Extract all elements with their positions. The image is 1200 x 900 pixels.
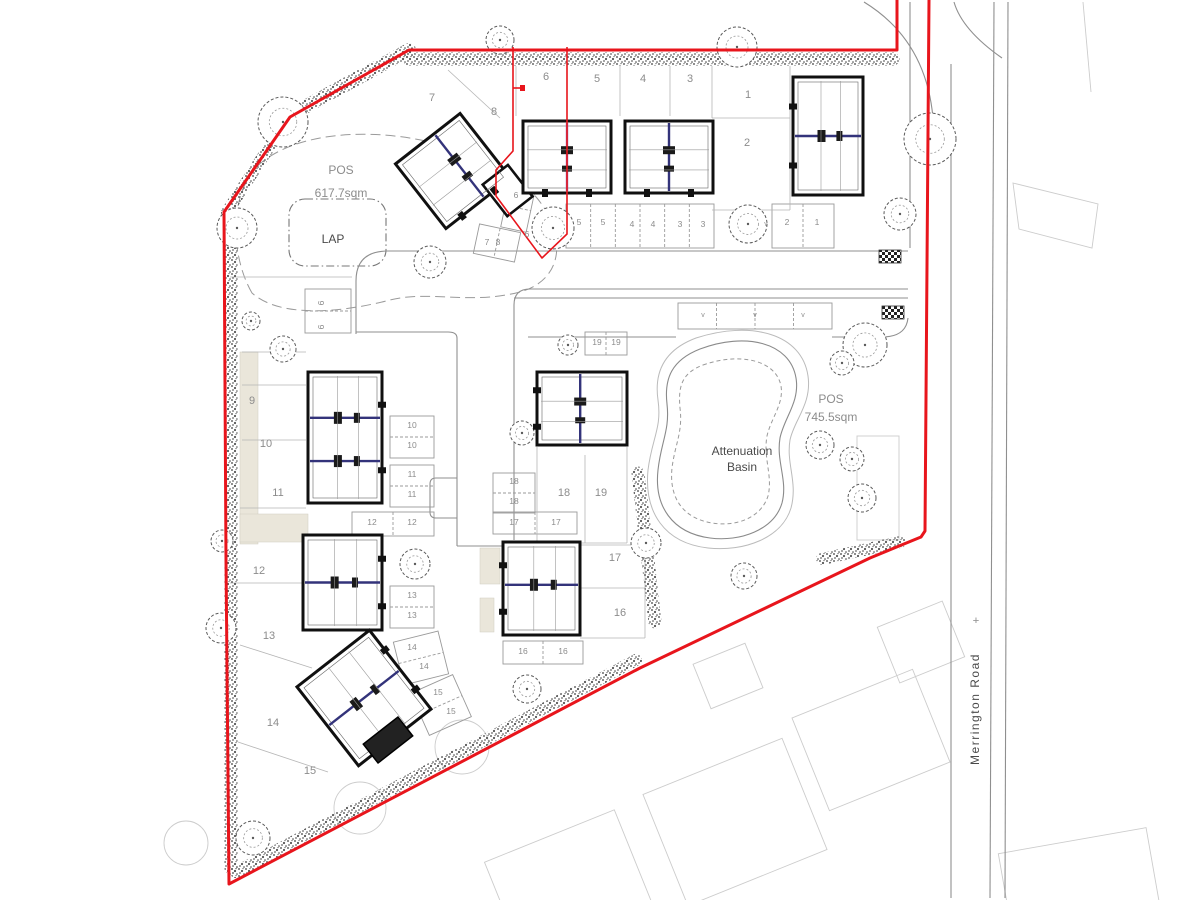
plot-number-label: 5 — [594, 73, 600, 85]
parking-number-label: 6 — [525, 229, 530, 239]
tree-icon — [513, 675, 541, 703]
fence-line — [240, 645, 312, 668]
existing-building-outline — [643, 738, 827, 900]
existing-building-outline — [998, 828, 1161, 900]
pos2_line2-label: 745.5sqm — [805, 410, 858, 424]
parking-number-label: 9 — [316, 301, 326, 306]
road-kerb — [1005, 2, 1008, 898]
parking-number-label: 4 — [651, 219, 656, 229]
plot-number-label: 1 — [745, 89, 751, 101]
porch — [533, 387, 541, 393]
house-footprint — [789, 77, 863, 195]
tree-icon — [884, 198, 916, 230]
porch — [499, 609, 507, 615]
parking-number-label: 12 — [367, 517, 377, 527]
site-plan-page: 78654312910111213141518191716+554433v216… — [0, 0, 1200, 900]
tree-icon — [729, 205, 767, 243]
parking-number-label: 2 — [785, 217, 790, 227]
porch — [378, 556, 386, 562]
plot-number-label: 16 — [614, 607, 626, 619]
tree-icon — [400, 549, 430, 579]
house-footprint — [303, 535, 386, 630]
parking-number-label: 3 — [678, 219, 683, 229]
existing-building-outline — [877, 601, 964, 683]
parking-number-label: 14 — [419, 661, 429, 671]
parking-number-label: 8 — [496, 237, 501, 247]
level_mark-label: + — [973, 615, 979, 627]
parking-bay-group — [493, 512, 577, 534]
attenuation-basin — [657, 341, 796, 539]
parking-number-label: 18 — [509, 496, 519, 506]
house-footprint — [308, 372, 386, 503]
porch — [688, 189, 694, 197]
parking-bay-group — [772, 204, 834, 248]
tree-icon — [631, 528, 661, 558]
tree-icon — [731, 563, 757, 589]
tree-icon — [830, 351, 854, 375]
plot-number-label: 18 — [558, 487, 570, 499]
house-footprint — [533, 372, 627, 445]
parking-number-label: 1 — [815, 217, 820, 227]
parking-number-label: v — [764, 221, 768, 228]
plot-number-label: 19 — [595, 487, 607, 499]
porch — [378, 402, 386, 408]
existing-tree-outline — [164, 821, 208, 865]
house-footprint — [625, 121, 713, 197]
lap-label: LAP — [322, 232, 345, 246]
parking-number-label: 11 — [408, 489, 417, 499]
existing-building-outline — [693, 643, 763, 708]
existing-building-outline — [792, 669, 950, 810]
parking-number-label: 10 — [407, 420, 417, 430]
basin_line1-label: Attenuation — [712, 444, 773, 458]
existing-field-line — [1083, 2, 1091, 92]
parking-number-label: 17 — [509, 517, 519, 527]
plot-number-label: 15 — [304, 765, 316, 777]
porch — [533, 424, 541, 430]
red-line-tick-dot — [520, 85, 525, 91]
parking-number-label: v — [801, 312, 805, 319]
parking-number-label: 15 — [433, 687, 443, 697]
parking-number-label: v — [701, 312, 705, 319]
parking-number-label: 16 — [558, 646, 568, 656]
existing-field-line — [1013, 183, 1098, 248]
crossing-marker — [879, 250, 901, 263]
plot-number-label: 4 — [640, 73, 646, 85]
parking-number-label: 17 — [551, 517, 561, 527]
parking-number-label: 10 — [407, 440, 417, 450]
parking-number-label: 12 — [407, 517, 417, 527]
tree-icon — [414, 246, 446, 278]
parking-number-label: 19 — [611, 337, 621, 347]
tree-icon — [211, 530, 233, 552]
basin_line2-label: Basin — [727, 460, 757, 474]
parking-bay-group — [352, 512, 434, 536]
tree-icon — [270, 336, 296, 362]
plot-number-label: 10 — [260, 438, 272, 450]
site-plan-svg: 78654312910111213141518191716+554433v216… — [0, 0, 1200, 900]
parking-number-label: 11 — [408, 469, 417, 479]
road-kerb — [954, 2, 1002, 58]
plot-number-label: 12 — [253, 565, 265, 577]
parking-number-label: 15 — [446, 706, 456, 716]
parking-number-label: 14 — [407, 642, 417, 652]
pos-boundary — [236, 134, 557, 311]
parking-number-label: 5 — [601, 217, 606, 227]
pos1_line1-label: POS — [328, 163, 353, 177]
tree-icon — [840, 447, 864, 471]
road-label: Merrington Road — [968, 653, 982, 765]
plot-number-label: 8 — [491, 106, 497, 118]
parking-number-label: 7 — [485, 237, 490, 247]
tree-icon — [558, 335, 578, 355]
footpath — [240, 514, 308, 542]
plot-number-label: 7 — [429, 92, 435, 104]
parking-number-label: 18 — [509, 476, 519, 486]
tree-icon — [242, 312, 260, 330]
plot-number-label: 2 — [744, 137, 750, 149]
pos2_line1-label: POS — [818, 392, 843, 406]
plot-number-label: 17 — [609, 552, 621, 564]
parking-number-label: 13 — [407, 610, 417, 620]
tree-icon — [510, 421, 534, 445]
parking-number-label: 4 — [630, 219, 635, 229]
parking-number-label: 19 — [592, 337, 602, 347]
parking-number-label: 5 — [577, 217, 582, 227]
footpath — [480, 548, 500, 584]
existing-building-outline — [484, 810, 655, 900]
porch — [789, 104, 797, 110]
tree-icon — [717, 27, 757, 67]
pos1_line2-label: 617.7sqm — [315, 186, 368, 200]
tree-icon — [904, 113, 956, 165]
porch — [378, 467, 386, 473]
plot-number-label: 11 — [272, 487, 283, 499]
tree-icon — [848, 484, 876, 512]
porch — [789, 163, 797, 169]
plot-number-label: 3 — [687, 73, 693, 85]
parking-number-label: 3 — [701, 219, 706, 229]
parking-number-label: v — [753, 312, 757, 319]
crossing-marker — [882, 306, 904, 319]
tree-icon — [258, 97, 308, 147]
footpath — [480, 598, 494, 632]
tree-icon — [236, 821, 270, 855]
parking-bay-group — [566, 204, 714, 248]
parking-number-label: 16 — [518, 646, 528, 656]
plot-number-label: 14 — [267, 717, 279, 729]
plot-number-label: 6 — [543, 71, 549, 83]
porch — [378, 603, 386, 609]
tree-icon — [206, 613, 236, 643]
tree-icon — [806, 431, 834, 459]
parking-number-label: 9 — [316, 325, 326, 330]
road-kerb — [990, 2, 994, 898]
house-footprint — [499, 542, 580, 635]
porch — [644, 189, 650, 197]
porch — [499, 562, 507, 568]
plot-number-label: 13 — [263, 630, 275, 642]
plot-number-label: 9 — [249, 395, 255, 407]
porch — [542, 189, 548, 197]
porch — [586, 189, 592, 197]
parking-bay-group — [503, 641, 583, 664]
parking-number-label: 13 — [407, 590, 417, 600]
parking-bay-group — [305, 289, 351, 333]
parking-number-label: 6 — [514, 190, 519, 200]
